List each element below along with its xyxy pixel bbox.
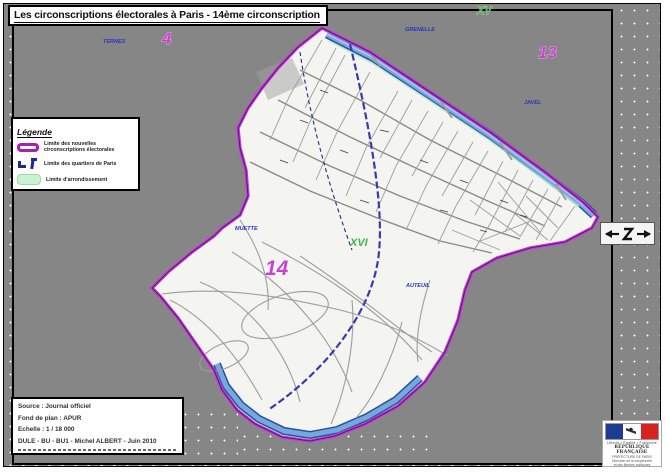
republique-francaise-logo: Liberté • Égalité • Fraternité RÉPUBLIQU… [602, 420, 662, 467]
map-title: Les circonscriptions électorales à Paris… [14, 9, 320, 23]
legend-item: Limite des quartiers de Paris [17, 158, 134, 169]
french-flag-icon [605, 423, 659, 440]
file-path-smudge [18, 449, 176, 451]
arrondissement-15-label: XV [476, 5, 493, 17]
neighbor-circonscription-4-label: 4 [161, 29, 172, 48]
legend: Légende Limite des nouvelles circonscrip… [11, 117, 140, 191]
quarter-grenelle-label: GRENELLE [405, 27, 435, 33]
neighbor-circonscription-13-label: 13 [538, 43, 557, 62]
arrondissement-limit-swatch [17, 174, 41, 185]
circonscription-14-label: 14 [265, 257, 289, 280]
legend-item: Limite d'arrondissement [17, 174, 134, 185]
quarter-muette-label: MUETTE [235, 226, 258, 232]
quarter-javel-label: JAVEL [524, 100, 542, 106]
republique-label: RÉPUBLIQUE FRANÇAISE [603, 445, 661, 455]
source-line: Source : Journal officiel [18, 403, 177, 410]
legend-title: Légende [17, 127, 52, 138]
basemap-line: Fond de plan : APUR [18, 415, 177, 422]
author-date-line: DULE - BU - BU1 - Michel ALBERT - Juin 2… [18, 438, 177, 445]
arrondissement-16-label: XVI [349, 237, 369, 249]
legend-item: Limite des nouvelles circonscriptions él… [17, 141, 134, 153]
scale-line: Echelle : 1 / 18 000 [18, 426, 177, 433]
direction-line-2: et des libertés publiques [603, 463, 661, 467]
quartier-limit-icon [17, 158, 39, 169]
map-info-box: Source : Journal officiel Fond de plan :… [11, 397, 184, 455]
legend-item-label: Limite des nouvelles circonscriptions él… [44, 141, 134, 153]
map-title-box: Les circonscriptions électorales à Paris… [8, 5, 328, 26]
north-arrow-icon [603, 225, 653, 243]
legend-item-label: Limite d'arrondissement [46, 177, 107, 183]
legend-item-label: Limite des quartiers de Paris [44, 161, 116, 167]
north-arrow-box [600, 222, 655, 245]
circonscription-limit-swatch [17, 143, 39, 152]
quarter-ternes-label: TERNES [103, 39, 126, 45]
quarter-auteuil-label: AUTEUIL [405, 283, 430, 289]
